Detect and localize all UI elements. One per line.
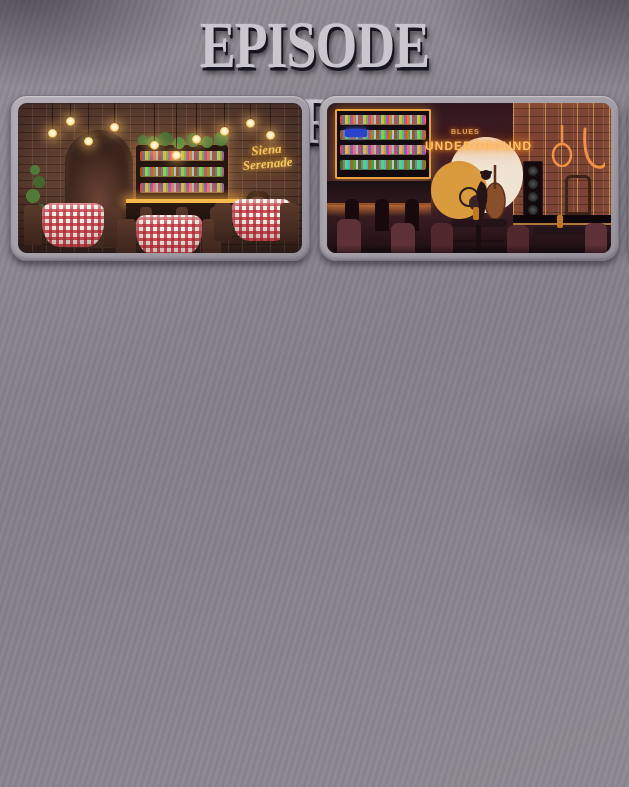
backgrounds-grid: Siena Serenade [10,95,619,261]
neon-sign-underground: UNDERGROUND [425,139,532,153]
speaker-cone [528,166,538,176]
bulb-wire [88,103,89,139]
speaker-cone [528,179,538,189]
floor-shadow [327,245,611,253]
scene-italian-trattoria: Siena Serenade [18,103,302,253]
hanging-bulb [66,117,75,126]
gingham-table [42,203,104,247]
sign-line: Serenade [242,153,293,172]
gingham-table [136,215,202,253]
speaker-cone [528,192,538,202]
wood-chair [117,219,136,253]
bulb-wire [270,103,271,133]
neon-sign-blues: BLUES [451,129,480,136]
bulb-wire [196,103,197,137]
poster-background: EPISODE BACKGROUNDS [0,0,629,787]
hanging-bulb [84,137,93,146]
hanging-bulb [220,127,229,136]
wood-chair [24,205,42,245]
whiskey-bottle [473,207,479,220]
speaker-column [523,161,543,217]
whiskey-bottle [557,215,563,228]
hanging-bulb [172,151,181,160]
bottle-row [340,145,426,154]
scene-jazz-club: BLUES UNDERGROUND [327,103,611,253]
saxophone-wall-decal [577,125,605,177]
bottle-row [340,160,426,169]
speaker-cone [528,205,538,215]
bottle-row [340,115,426,124]
hanging-bulb [150,141,159,150]
wood-chair [214,203,232,241]
ivy-left [30,165,40,175]
bulb-wire [114,103,115,125]
bulb-wire [176,103,177,153]
guitar-wall-decal [549,121,575,167]
hanging-bulb [192,135,201,144]
bar-back-shelves [136,145,228,201]
bulb-wire [52,103,53,131]
bulb-wire [224,103,225,129]
card-italian-trattoria: Siena Serenade [10,95,310,261]
back-bar-shelf [335,109,431,179]
jazz-musician-silhouette [455,159,517,225]
hanging-bulb [246,119,255,128]
card-jazz-club: BLUES UNDERGROUND [319,95,619,261]
wood-chair [280,203,298,241]
greenery-garland [138,135,148,145]
bulb-wire [154,103,155,143]
open-neon-sign [345,129,367,137]
hanging-bulb [48,129,57,138]
hanging-bulb [110,123,119,132]
cafe-table-dark [533,227,593,235]
bottle-row [140,167,224,176]
hanging-bulb [266,131,275,140]
bottle-row [140,183,224,192]
bar-stool [375,199,389,231]
wall-chair [565,175,591,215]
bottle-row [140,151,224,160]
neon-sign-siena-serenade: Siena Serenade [233,140,301,173]
